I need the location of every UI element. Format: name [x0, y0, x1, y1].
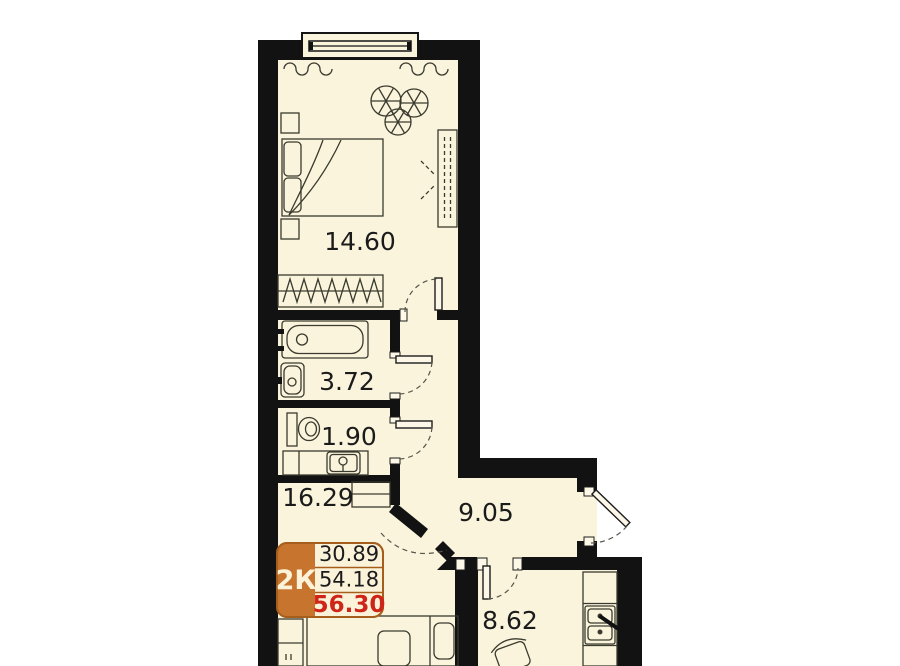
door-jamb — [400, 309, 407, 321]
door-leaf — [396, 356, 432, 363]
unit-badge: 2К 30.89 54.18 56.30 — [276, 542, 386, 618]
window — [302, 33, 418, 58]
room-area-label-bathroom: 3.72 — [319, 367, 375, 396]
room-area-label-kitchen: 8.62 — [482, 606, 538, 635]
room-area-label-living-room: 16.29 — [282, 483, 354, 512]
badge-unit-type: 2К — [276, 565, 317, 596]
window-end-tick — [407, 42, 411, 50]
door-leaf — [435, 278, 442, 310]
door-leaf — [483, 566, 490, 599]
room-area-label-hallway: 9.05 — [458, 498, 514, 527]
door-leaf — [396, 421, 432, 428]
door-leaf — [592, 490, 630, 527]
wall-segment — [278, 310, 405, 320]
floor-plan: 14.60 3.72 1.90 16.29 9.05 8.62 2К 30.89… — [0, 0, 900, 666]
wall-segment — [278, 400, 398, 408]
door-jamb — [584, 537, 594, 546]
door-jamb — [390, 458, 400, 464]
badge-area-value: 30.89 — [319, 542, 379, 566]
floor-plan-svg: 14.60 3.72 1.90 16.29 9.05 8.62 2К 30.89… — [0, 0, 900, 666]
badge-area-value-total: 56.30 — [313, 592, 386, 618]
wall-segment — [437, 310, 458, 320]
room-area-label-wc: 1.90 — [321, 422, 377, 451]
room-area-label-bedroom: 14.60 — [324, 227, 396, 256]
door-jamb — [390, 393, 400, 399]
badge-area-value: 54.18 — [319, 568, 379, 592]
wall-segment — [458, 60, 597, 478]
window-end-tick — [309, 42, 313, 50]
door-jamb — [456, 559, 465, 570]
